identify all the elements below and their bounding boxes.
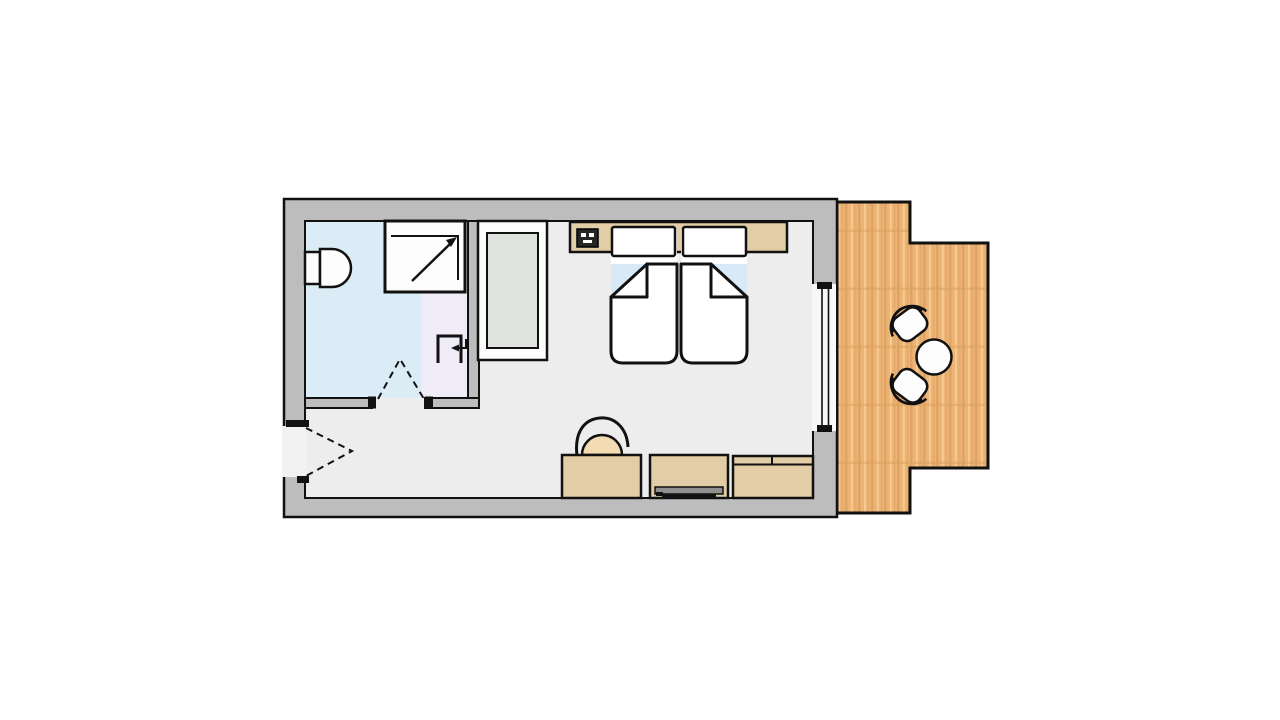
entrance-opening [282, 426, 307, 477]
headboard-shelf [570, 222, 787, 252]
entrance-jamb-top [286, 420, 309, 427]
telephone [577, 229, 598, 247]
telephone-key-1 [581, 233, 586, 237]
toilet-tank [305, 252, 320, 284]
shower-tray [385, 221, 465, 292]
wardrobe [478, 221, 547, 360]
bathroom [305, 221, 479, 409]
toilet [305, 249, 351, 287]
bathroom-wall-right [425, 398, 479, 408]
toilet-bowl [320, 249, 351, 287]
glass-door-opening [812, 284, 836, 431]
shower [385, 221, 465, 292]
telephone-key-2 [589, 233, 594, 237]
canvas [0, 0, 1280, 720]
headboard [570, 222, 787, 252]
sliding-glass-door [812, 282, 836, 432]
balcony-table [917, 340, 952, 375]
bed-left-pillow [612, 227, 675, 256]
tv-stand-bar [662, 494, 716, 497]
tv [655, 487, 723, 494]
floor-plan [0, 0, 1280, 720]
twin-bed-right [681, 227, 747, 363]
telephone-key-3 [583, 240, 592, 243]
glass-door-stop-bottom [817, 425, 832, 432]
bathroom-door-jamb-left [368, 397, 376, 409]
bathroom-door-jamb-right [425, 397, 433, 409]
bed-right-pillow [683, 227, 746, 256]
balcony [837, 202, 988, 513]
desk [562, 455, 641, 498]
twin-bed-left [611, 227, 677, 363]
balcony-deck [837, 202, 988, 513]
entrance-jamb-bottom [297, 476, 309, 483]
bathroom-wall-left [305, 398, 372, 408]
wardrobe-interior [487, 233, 538, 348]
tv-foot [656, 492, 663, 496]
glass-door-stop-top [817, 282, 832, 289]
